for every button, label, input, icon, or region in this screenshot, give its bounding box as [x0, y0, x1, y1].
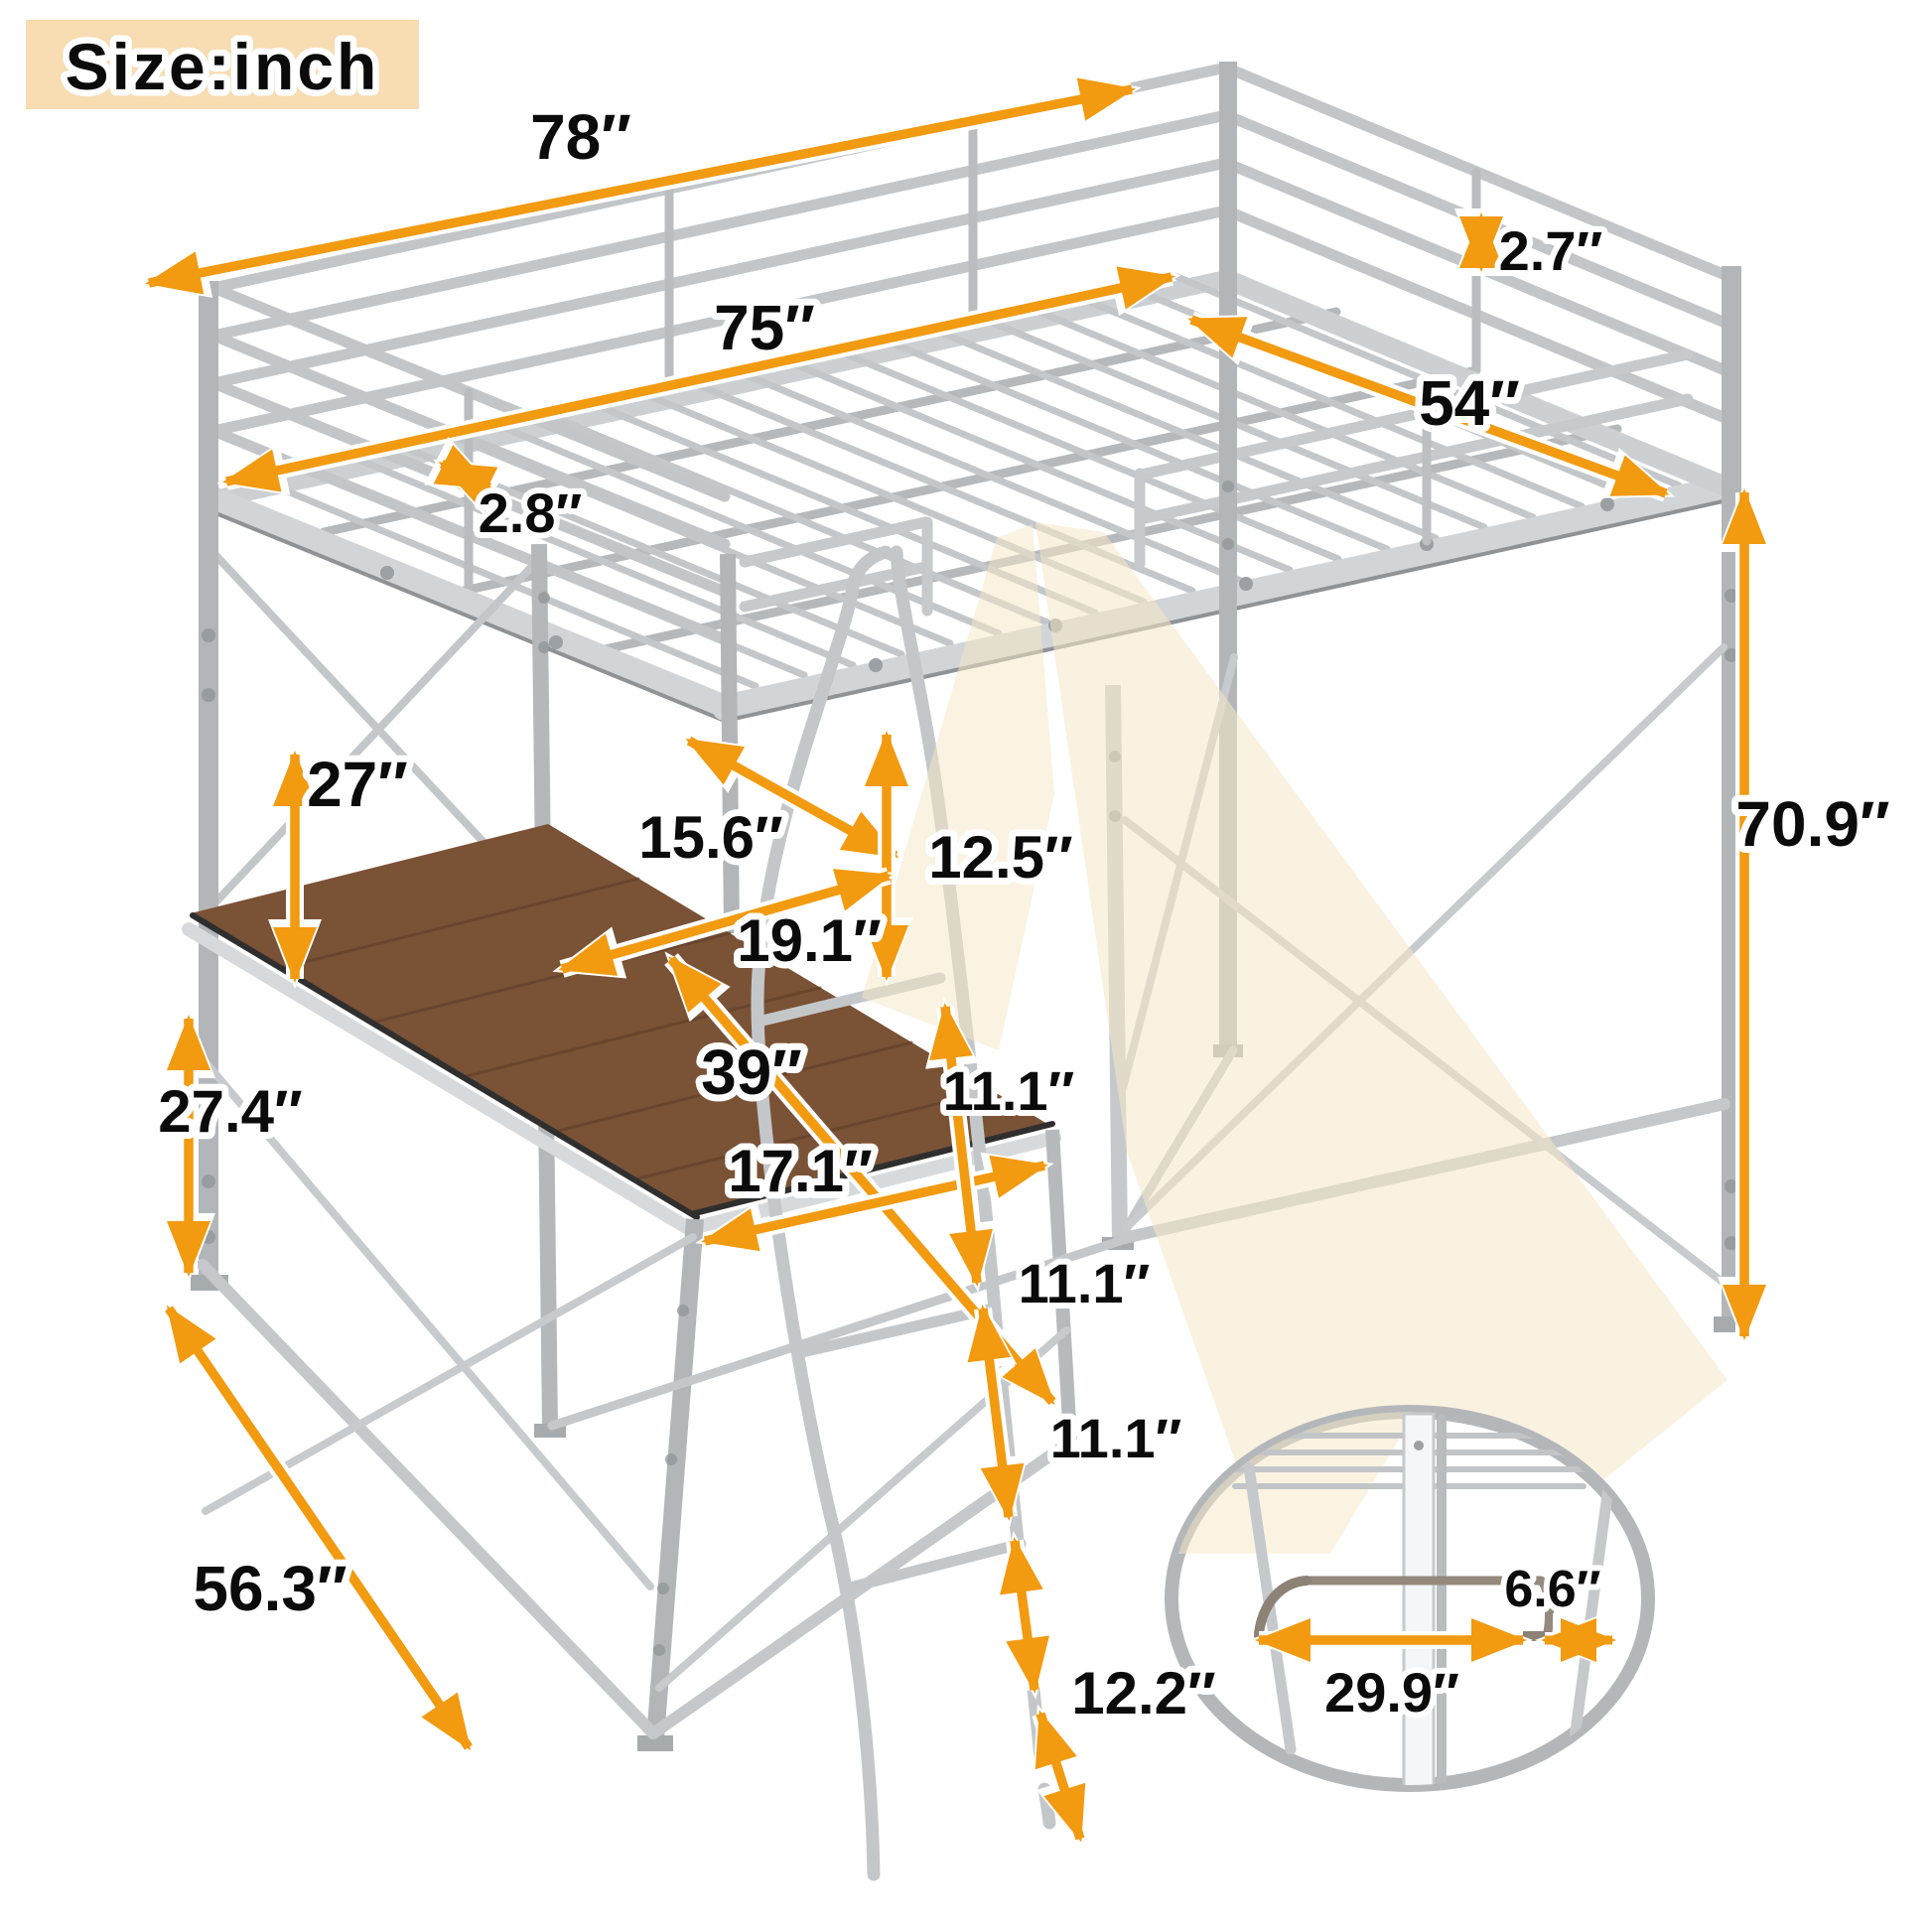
inset-center-post — [1404, 1414, 1434, 1791]
dim-overall-height: 70.9″ — [1735, 788, 1889, 860]
dim-ladder-bottom-clearance: 12.2″ — [1071, 1660, 1216, 1726]
dim-desk-side-width: 19.1″ — [737, 907, 882, 974]
arrow-56.3 — [169, 1309, 469, 1747]
base-beam-left — [203, 1265, 653, 1733]
dim-desk-height: 27.4″ — [158, 1078, 303, 1145]
loft-bed-dimension-diagram: 78″ 75″ 2.7″ 54″ 2.8″ 27″ 15.6″ 12.5″ 19… — [0, 0, 1932, 1932]
dim-base-depth: 56.3″ — [193, 1553, 346, 1624]
dim-bed-length-top: 78″ — [530, 101, 631, 173]
dim-desk-back-depth: 15.6″ — [638, 804, 783, 871]
dim-guardrail-gap: 2.7″ — [1499, 219, 1603, 282]
dim-desk-diagonal: 39″ — [701, 1036, 802, 1108]
inset-rivet — [1414, 1441, 1424, 1450]
dim-rung-spacing-3: 11.1″ — [1050, 1407, 1182, 1469]
diagram-canvas: 78″ 75″ 2.7″ 54″ 2.8″ 27″ 15.6″ 12.5″ 19… — [0, 0, 1932, 1932]
title-badge: Size:inch — [26, 20, 419, 109]
post-front-mid-left — [728, 554, 732, 933]
dim-bed-to-desk-clearance: 27″ — [307, 749, 408, 820]
dim-rung-spacing-2: 11.1″ — [1019, 1252, 1151, 1314]
dim-bed-length-inner: 75″ — [714, 292, 815, 363]
dim-deck-to-first-rung: 12.5″ — [928, 824, 1073, 891]
page-title: Size:inch — [66, 30, 380, 103]
dim-rod-offset: 6.6″ — [1504, 1561, 1600, 1618]
ladder-stringer-right-tip — [1044, 1789, 1049, 1823]
dim-rung-spacing-1: 11.1″ — [943, 1059, 1075, 1122]
arrow-78 — [149, 89, 1132, 283]
light-beam-main — [1035, 522, 1727, 1549]
dim-rail-spacing: 2.8″ — [479, 482, 583, 544]
arrow-11.1-c — [1015, 1541, 1035, 1690]
dim-rod-length: 29.9″ — [1324, 1661, 1459, 1724]
dim-desk-front-edge: 17.1″ — [728, 1138, 873, 1204]
dim-bed-width: 54″ — [1419, 367, 1520, 439]
